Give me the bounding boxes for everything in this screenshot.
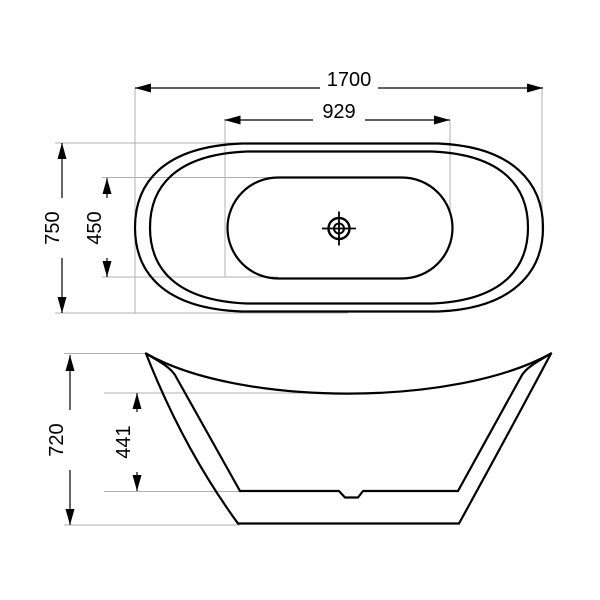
dim-label-overall-width: 750 [42,211,64,244]
dim-label-basin-depth: 441 [113,425,135,458]
tub-outer-wall-right [459,354,551,524]
arrow-down-icon [58,297,67,313]
dim-label-basin-width: 450 [84,211,106,244]
arrow-up-icon [58,143,67,159]
dimension-labels: 1700 929 750 450 720 441 [42,69,371,459]
arrow-left-icon [135,84,151,93]
tub-floor-with-drain-notch [240,491,458,498]
technical-drawing: 1700 929 750 450 720 441 [0,0,600,600]
arrow-up-icon [66,355,75,371]
tub-rim-profile [146,354,551,394]
arrow-down-icon [66,509,75,525]
dim-label-overall-height: 720 [46,423,68,456]
arrow-up-icon [103,178,112,194]
arrow-left-icon [225,116,241,125]
drain-icon [322,212,356,246]
arrow-right-icon [527,84,543,93]
arrow-down-icon [133,475,142,491]
arrow-right-icon [434,116,450,125]
side-view [146,354,551,524]
drawing-sheet: 1700 929 750 450 720 441 [0,0,600,600]
dim-label-basin-length: 929 [322,101,355,123]
dimension-text-gaps [42,66,378,472]
arrow-up-icon [133,393,142,409]
tub-inner-wall-right [458,354,551,492]
dim-label-overall-length: 1700 [327,69,372,91]
top-view [135,144,543,312]
arrow-down-icon [103,261,112,277]
tub-outer-wall-left [146,354,238,524]
